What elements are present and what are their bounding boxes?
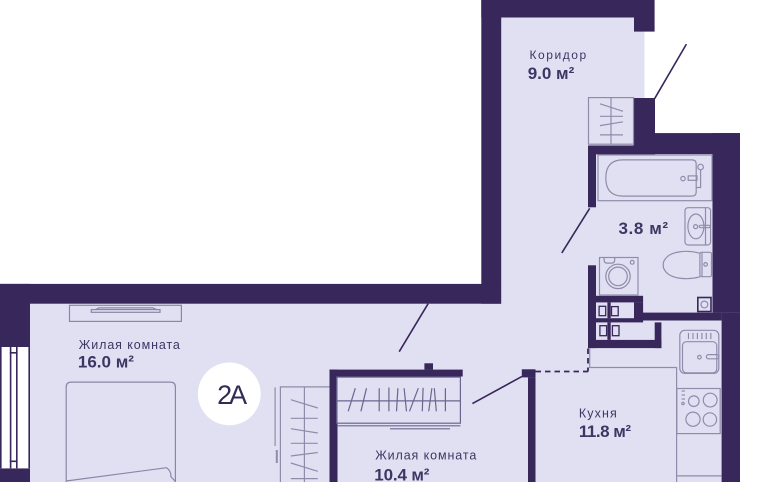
- svg-text:10.4 м²: 10.4 м²: [374, 466, 429, 482]
- svg-text:Жилая комната: Жилая комната: [375, 448, 477, 462]
- svg-text:Жилая комната: Жилая комната: [79, 338, 181, 352]
- svg-text:9.0 м²: 9.0 м²: [528, 64, 575, 83]
- svg-text:Кухня: Кухня: [579, 406, 618, 420]
- svg-text:11.8 м²: 11.8 м²: [579, 422, 631, 441]
- svg-text:3.8 м²: 3.8 м²: [619, 219, 669, 238]
- svg-text:16.0 м²: 16.0 м²: [78, 352, 134, 371]
- svg-text:2A: 2A: [217, 380, 247, 410]
- svg-text:Коридор: Коридор: [530, 48, 588, 62]
